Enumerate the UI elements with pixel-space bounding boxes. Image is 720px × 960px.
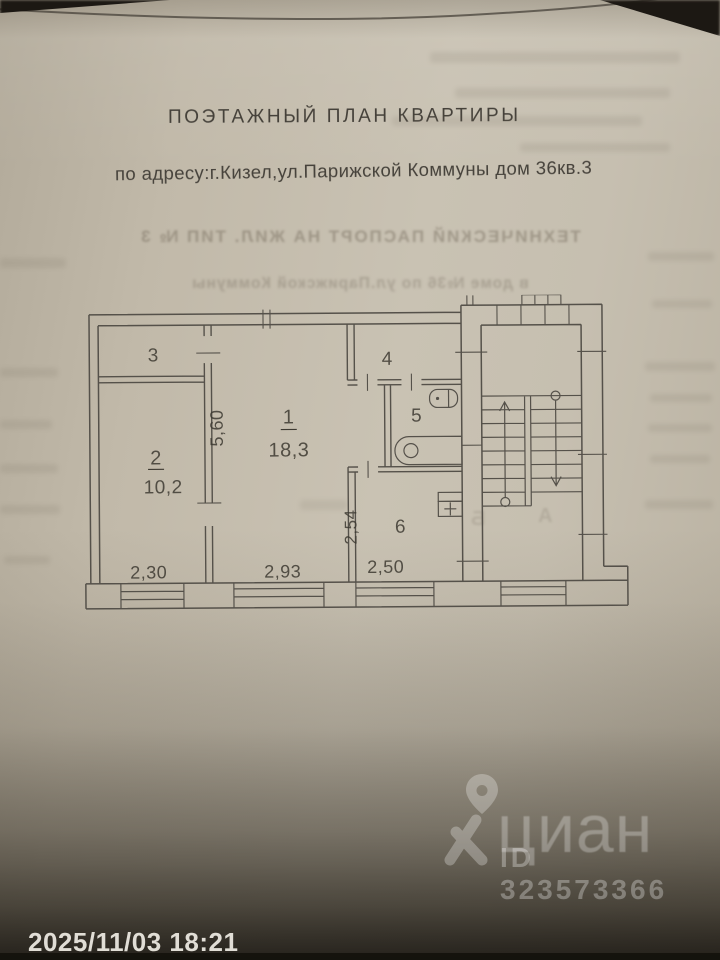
bleed-smudge	[645, 362, 715, 371]
bleed-smudge	[648, 424, 712, 432]
room-1-label: 1	[283, 406, 295, 428]
bleed-smudge	[4, 556, 50, 564]
bleed-smudge	[652, 300, 712, 308]
photo-timestamp: 2025/11/03 18:21	[28, 927, 238, 958]
bleed-smudge	[455, 88, 670, 98]
stairs-up-arrow	[500, 402, 511, 498]
bleed-smudge	[645, 500, 713, 509]
dim-2-50: 2,50	[367, 557, 404, 577]
dim-5-60: 5,60	[207, 409, 227, 446]
bleed-smudge	[650, 455, 710, 463]
bleed-smudge	[430, 52, 680, 63]
dim-2-30: 2,30	[130, 562, 167, 582]
fixtures	[395, 389, 463, 516]
bleedthrough-passport-subtitle: в доме №36 по ул.Парижской Коммуны	[150, 275, 570, 293]
bleed-smudge	[0, 258, 66, 268]
staircase	[482, 391, 583, 507]
bleed-smudge	[0, 368, 58, 377]
sink-icon	[438, 492, 462, 501]
bleed-smudge	[0, 420, 52, 429]
photo-of-floor-plan-document: ПОЭТАЖНЫЙ ПЛАН КВАРТИРЫ по адресу:г.Кизе…	[0, 0, 720, 960]
room-4-label: 4	[382, 349, 393, 370]
bleed-smudge	[0, 464, 58, 473]
bleed-smudge	[392, 116, 642, 126]
bathtub-icon	[395, 436, 462, 464]
room-6-label: 6	[395, 517, 406, 538]
toilet-icon	[430, 389, 458, 407]
dim-2-54: 2,54	[341, 509, 360, 544]
bleed-smudge	[0, 505, 60, 514]
stairs-down-arrow	[551, 401, 562, 486]
windows	[121, 581, 566, 609]
room-5-label: 5	[411, 406, 422, 427]
dim-2-93: 2,93	[264, 561, 301, 581]
bleed-smudge	[648, 252, 714, 261]
paper-top-edge	[0, 0, 720, 40]
bleed-smudge	[520, 143, 670, 152]
stairs-arrow-start	[501, 497, 510, 506]
room-3-label: 3	[148, 345, 159, 366]
floor-plan: 3 2 10,2 5,60 1 18,3 4 5 6 2,54 2,30 2,9…	[77, 294, 639, 628]
bleed-smudge	[650, 394, 712, 402]
room-2-area: 10,2	[144, 477, 183, 498]
bleedthrough-passport-title: ТЕХНИЧЕСКИЙ ПАСПОРТ НА ЖИЛ. ТИП № 3	[100, 227, 620, 247]
room-2-label: 2	[150, 447, 162, 469]
room-1-area: 18,3	[268, 439, 309, 461]
